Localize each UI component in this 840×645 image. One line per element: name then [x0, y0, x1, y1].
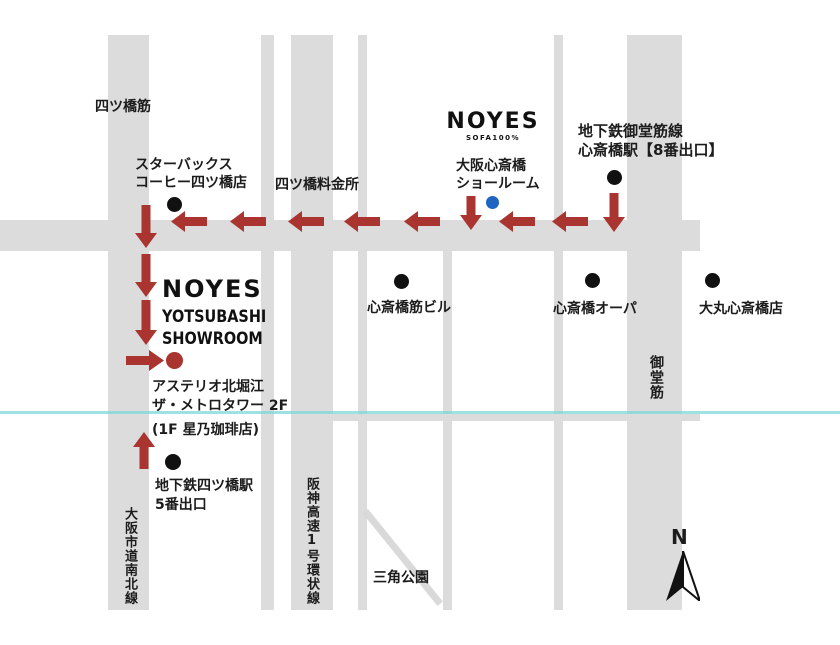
route-arrow-down-south-1 [135, 254, 157, 297]
marker-shinsaibashi-showroom [486, 196, 499, 209]
noyes-logo-subtext: SOFA100% [440, 134, 546, 142]
showroom-text: SHOWROOM [162, 330, 266, 348]
label-showroom-address: アステリオ北堀江 ザ・メトロタワー 2F [152, 378, 288, 415]
route-arrow-left-4 [344, 211, 380, 232]
route-arrow-left-3 [404, 211, 440, 232]
marker-shinsaibashi-station-exit8 [607, 170, 622, 185]
route-arrow-left-2 [499, 211, 535, 232]
route-arrow-down-station [603, 193, 625, 232]
noyes-logo-text: NOYES [162, 276, 285, 302]
marker-shinsaibashisuji-bldg [394, 274, 409, 289]
label-shinsaibashisuji-bldg: 心斎橋筋ビル [367, 299, 451, 317]
marker-yotsubashi-station-exit5 [165, 454, 181, 470]
label-osaka-nanboku-line: 大阪市道南北線 [120, 507, 139, 605]
label-starbucks: スターバックス コーヒー四ツ橋店 [135, 156, 247, 192]
label-yotsubashi-station: 地下鉄四ツ橋駅 5番出口 [155, 477, 253, 515]
route-arrow-left-7 [171, 211, 207, 232]
marker-daimaru [705, 273, 720, 288]
label-sankaku-park: 三角公園 [373, 569, 429, 587]
road-diagonal-sankaku-park [363, 509, 443, 606]
marker-starbucks [167, 197, 182, 212]
label-daimaru: 大丸心斎橋店 [699, 300, 783, 318]
label-tollgate: 四ツ橋料金所 [275, 176, 359, 194]
label-yotsubashi-suji: 四ツ橋筋 [95, 98, 151, 116]
label-midosuji: 御堂筋 [646, 355, 666, 400]
route-arrow-down-showroom [460, 196, 482, 230]
road-thin-north-south-3 [554, 35, 563, 610]
route-arrow-right-entrance [126, 350, 164, 371]
road-thin-north-south-2 [358, 35, 367, 610]
label-shinsaibashi-station: 地下鉄御堂筋線 心斎橋駅【8番出口】 [578, 122, 723, 160]
label-hanshin-expressway: 阪神高速1号環状線 [302, 477, 321, 605]
north-label: N [671, 525, 688, 549]
route-arrow-up-from-yotsubashi-station [133, 432, 155, 469]
marker-shinsaibashi-opa [585, 273, 600, 288]
route-arrow-down-corner [135, 205, 157, 248]
route-arrow-left-5 [288, 211, 324, 232]
noyes-logo-shinsaibashi: NOYES SOFA100% [440, 110, 546, 142]
route-arrow-left-1 [552, 211, 588, 232]
noyes-logo-text: NOYES [440, 110, 546, 134]
route-arrow-left-6 [230, 211, 266, 232]
yotsubashi-text: YOTSUBASHI [162, 308, 266, 326]
label-showroom-address-1f: (1F 星乃珈琲店) [152, 421, 259, 439]
shinsaibashi-showroom-label: 大阪心斎橋 ショールーム [456, 157, 540, 193]
noyes-logo-yotsubashi: NOYES YOTSUBASHI SHOWROOM [162, 276, 285, 348]
north-arrow-icon [666, 551, 700, 601]
access-map: NOYES SOFA100% 大阪心斎橋 ショールーム NOYES YOTSUB… [0, 0, 840, 645]
cyan-overlay-line [0, 411, 840, 414]
label-shinsaibashi-opa: 心斎橋オーパ [553, 300, 637, 318]
marker-yotsubashi-showroom [166, 352, 183, 369]
route-arrow-down-south-2 [135, 300, 157, 345]
